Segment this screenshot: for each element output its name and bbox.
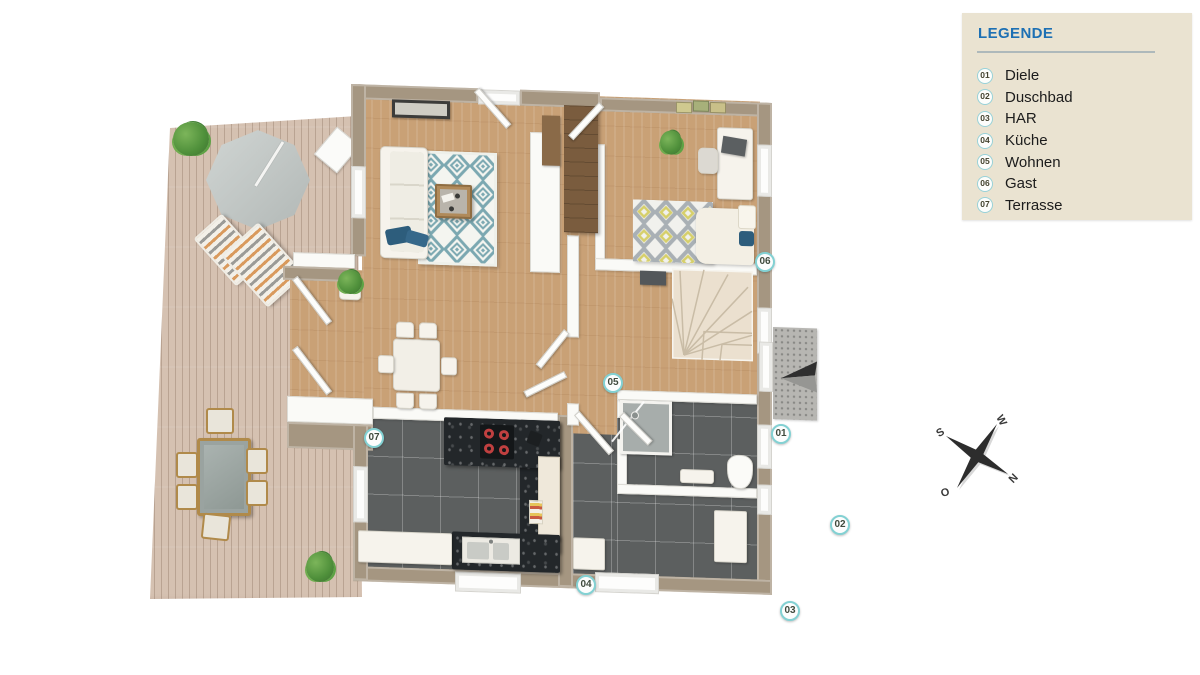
legend-item: 01 Diele: [977, 65, 1182, 87]
legend-number-badge: 01: [977, 68, 993, 84]
compass-north-label: N: [1007, 472, 1021, 486]
legend-item: 07 Terrasse: [977, 195, 1182, 217]
kitchen-counter-white: [358, 530, 452, 565]
entrance-arrow-icon: [781, 360, 817, 395]
burner-icon: [499, 445, 509, 455]
legend-label: Diele: [1005, 67, 1039, 84]
coffee-table-items: [455, 193, 460, 198]
entry-door: [759, 342, 773, 392]
sink-basin: [493, 543, 509, 561]
guest-picture-icon: [676, 102, 692, 114]
window-west: [353, 466, 368, 522]
legend-number-badge: 06: [977, 176, 993, 192]
legend-item: 05 Wohnen: [977, 151, 1182, 173]
picture-art: [395, 102, 447, 116]
compass-east-label: O: [939, 486, 951, 500]
wall-living-hall: [567, 235, 579, 337]
guest-picture-icon: [710, 102, 726, 114]
dining-chair: [396, 392, 414, 409]
floor-plan: 01 02 03 04 05 06 07: [140, 78, 840, 623]
legend-item: 03 HAR: [977, 108, 1182, 130]
dining-chair: [419, 393, 437, 410]
room-badge-har: 03: [780, 601, 800, 621]
bed-pillow: [739, 231, 754, 246]
window-south: [595, 572, 659, 594]
kitchen-tall-cabinet: [538, 456, 560, 541]
legend-label: HAR: [1005, 110, 1037, 127]
room-badge-gast: 06: [755, 252, 775, 272]
desk-chair: [698, 148, 718, 175]
coffee-table-items: [449, 206, 454, 211]
dining-chair: [441, 357, 457, 376]
dining-chair: [419, 322, 437, 339]
room-badge-terrasse: 07: [364, 428, 384, 448]
dining-chair: [396, 321, 414, 338]
legend-items: 01 Diele 02 Duschbad 03 HAR 04 Küche 05 …: [977, 65, 1182, 216]
legend-title: LEGENDE: [978, 25, 1053, 42]
staircase: [672, 269, 753, 362]
sink-basin: [467, 542, 489, 560]
legend-item: 04 Küche: [977, 130, 1182, 152]
legend-label: Terrasse: [1005, 197, 1063, 214]
bed-pillow: [738, 205, 756, 230]
washing-machine: [573, 537, 605, 570]
legend-divider: [977, 51, 1155, 53]
wall-kitchen-har: [558, 415, 573, 587]
legend-number-badge: 03: [977, 111, 993, 127]
room-badge-wohnen: 05: [603, 373, 623, 393]
legend-label: Küche: [1005, 132, 1048, 149]
burner-icon: [484, 428, 494, 438]
burner-icon: [484, 443, 494, 453]
bath-sink: [680, 469, 714, 484]
legend-number-badge: 04: [977, 133, 993, 149]
tv-lowboard: [640, 271, 666, 286]
window-south: [455, 571, 521, 593]
har-cabinet: [714, 510, 747, 563]
coffee-table: [435, 184, 472, 219]
burner-icon: [499, 430, 509, 440]
indoor-plant-icon: [338, 270, 362, 295]
window-east: [757, 144, 772, 196]
legend-label: Duschbad: [1005, 89, 1073, 106]
legend-panel: LEGENDE 01 Diele 02 Duschbad 03 HAR 04 K…: [962, 13, 1192, 220]
window-west: [351, 166, 366, 218]
legend-number-badge: 07: [977, 197, 993, 213]
room-badge-duschbad: 02: [830, 515, 850, 535]
cooktop: [480, 424, 514, 459]
compass-south-label: S: [934, 426, 947, 440]
window-east: [757, 424, 772, 468]
toilet-icon: [727, 454, 753, 489]
kitchen-sink: [462, 537, 520, 565]
room-badge-kueche: 04: [576, 575, 596, 595]
building: [140, 71, 840, 639]
legend-number-badge: 05: [977, 154, 993, 170]
legend-item: 06 Gast: [977, 173, 1182, 195]
legend-number-badge: 02: [977, 89, 993, 105]
dining-chair: [378, 355, 394, 374]
wall-picture-icon: [392, 99, 450, 119]
legend-item: 02 Duschbad: [977, 87, 1182, 109]
window-east: [757, 484, 772, 514]
shower: [620, 400, 672, 456]
room-badge-diele: 01: [771, 424, 791, 444]
legend-label: Wohnen: [1005, 154, 1061, 171]
spice-rack: [529, 500, 543, 524]
floor-plan-canvas: 01 02 03 04 05 06 07 LEGENDE 01 Diele 02…: [0, 0, 1200, 675]
compass-rose-icon: S W N O: [930, 410, 1025, 502]
wall-bay-south: [287, 396, 373, 425]
legend-label: Gast: [1005, 175, 1037, 192]
shower-drain: [631, 411, 639, 419]
guest-plant-icon: [660, 130, 682, 155]
hall-cabinet: [542, 115, 560, 166]
dining-table: [393, 338, 440, 392]
faucet-icon: [489, 540, 493, 544]
guest-picture-icon: [693, 100, 709, 112]
